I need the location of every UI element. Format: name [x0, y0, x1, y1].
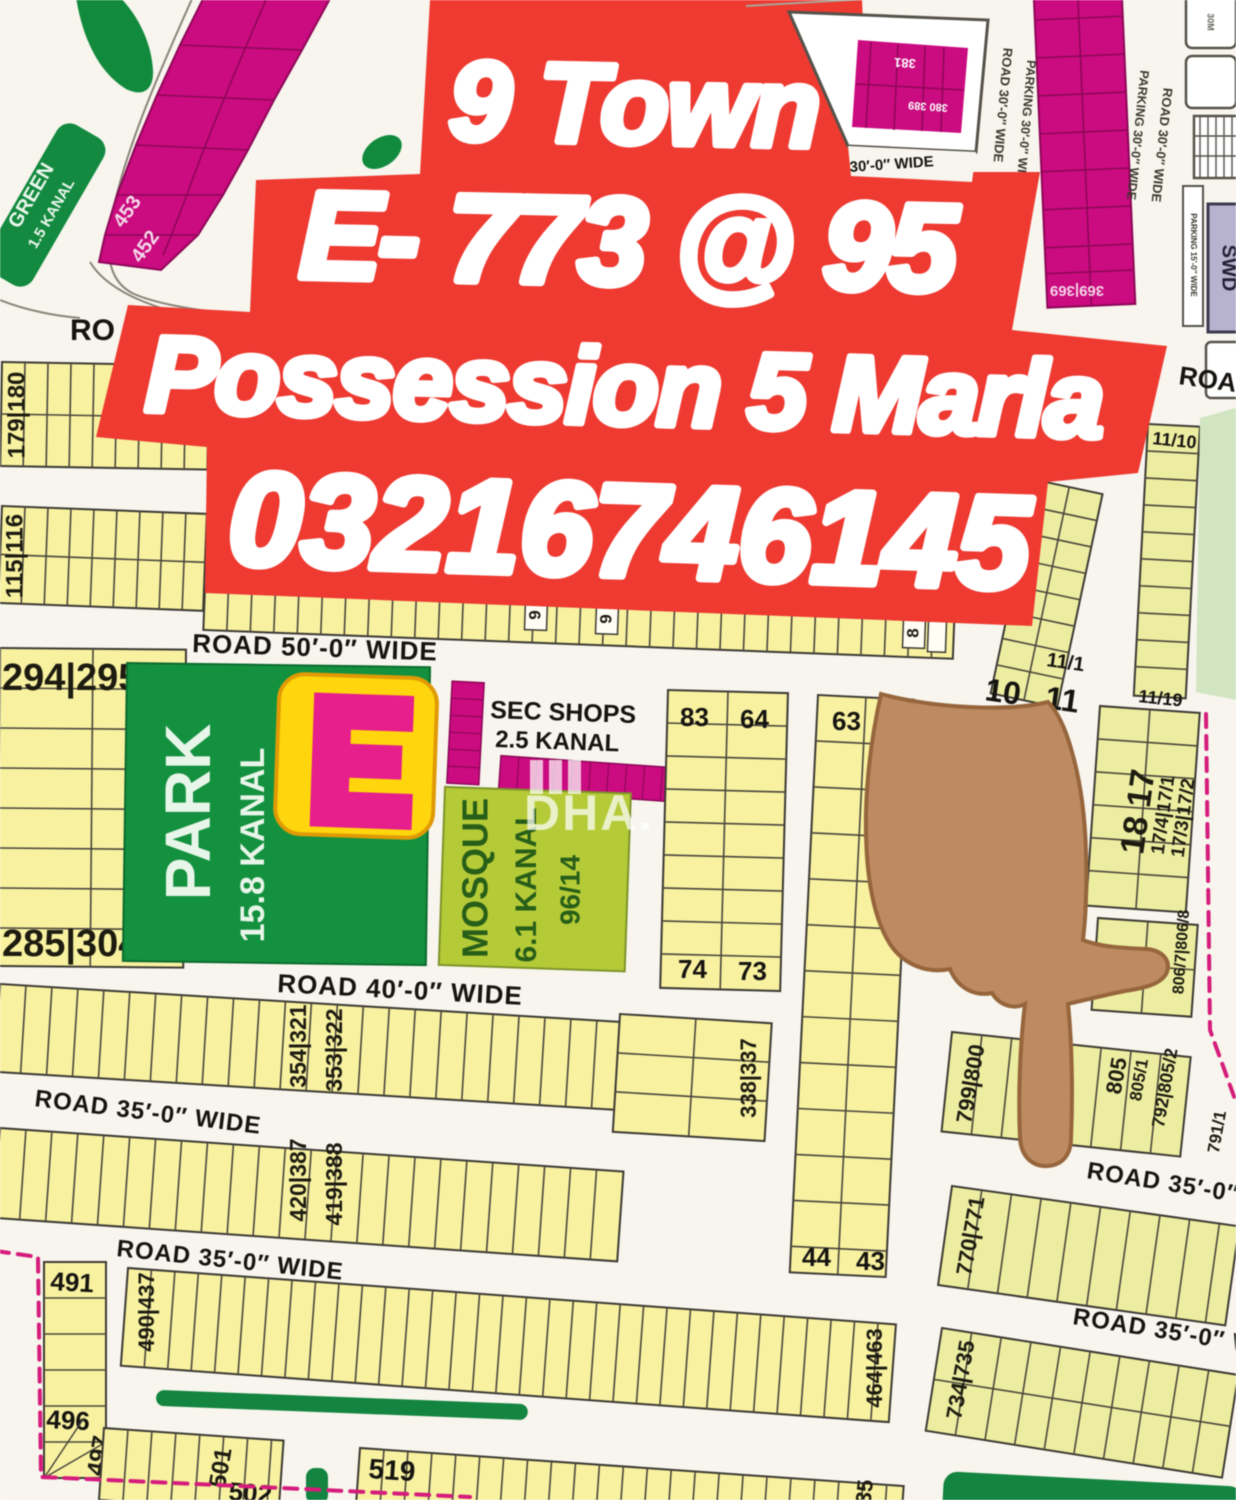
- svg-text:519: 519: [368, 1453, 417, 1487]
- svg-text:490|437: 490|437: [134, 1272, 159, 1352]
- svg-text:03216746145: 03216746145: [227, 444, 1035, 616]
- svg-text:115|116: 115|116: [1, 514, 28, 598]
- svg-text:73: 73: [738, 956, 767, 986]
- svg-text:SEC SHOPS: SEC SHOPS: [490, 696, 637, 729]
- svg-text:420|387: 420|387: [285, 1138, 311, 1221]
- svg-text:MOSQUE: MOSQUE: [455, 798, 496, 958]
- svg-text:464|463: 464|463: [862, 1328, 887, 1408]
- svg-text:74: 74: [678, 954, 707, 984]
- svg-text:96/14: 96/14: [554, 855, 585, 925]
- svg-text:E- 773 @ 95: E- 773 @ 95: [298, 167, 960, 318]
- svg-text:63: 63: [832, 706, 861, 736]
- svg-text:8: 8: [903, 628, 922, 637]
- svg-text:419|388: 419|388: [321, 1142, 347, 1225]
- svg-text:338|337: 338|337: [736, 1038, 761, 1118]
- svg-text:RO: RO: [70, 314, 115, 347]
- svg-text:9: 9: [596, 614, 615, 623]
- svg-text:354|321: 354|321: [285, 1004, 311, 1087]
- svg-text:30M: 30M: [1206, 13, 1216, 31]
- svg-text:285|304: 285|304: [2, 923, 139, 965]
- svg-text:353|322: 353|322: [321, 1008, 347, 1091]
- svg-text:43: 43: [856, 1246, 885, 1276]
- svg-text:35: 35: [851, 1478, 878, 1500]
- svg-text:83: 83: [680, 702, 709, 732]
- svg-text:496: 496: [46, 1404, 91, 1436]
- svg-text:491: 491: [50, 1266, 95, 1298]
- svg-text:PARKING 15′-0″ WIDE: PARKING 15′-0″ WIDE: [1189, 213, 1198, 297]
- svg-text:2.5 KANAL: 2.5 KANAL: [495, 726, 620, 757]
- svg-text:SWD: SWD: [1218, 245, 1236, 292]
- svg-text:9 Town: 9 Town: [448, 38, 820, 171]
- svg-text:44: 44: [802, 1242, 831, 1272]
- svg-text:9: 9: [525, 610, 544, 619]
- svg-text:DHA.: DHA.: [524, 785, 654, 841]
- svg-text:294|295: 294|295: [2, 657, 139, 699]
- svg-text:15.8 KANAL: 15.8 KANAL: [234, 748, 272, 943]
- svg-text:369|369: 369|369: [1050, 282, 1104, 299]
- svg-text:PARK: PARK: [152, 724, 224, 901]
- svg-text:64: 64: [740, 704, 769, 734]
- svg-text:179|180: 179|180: [3, 372, 30, 459]
- svg-text:381: 381: [894, 55, 917, 71]
